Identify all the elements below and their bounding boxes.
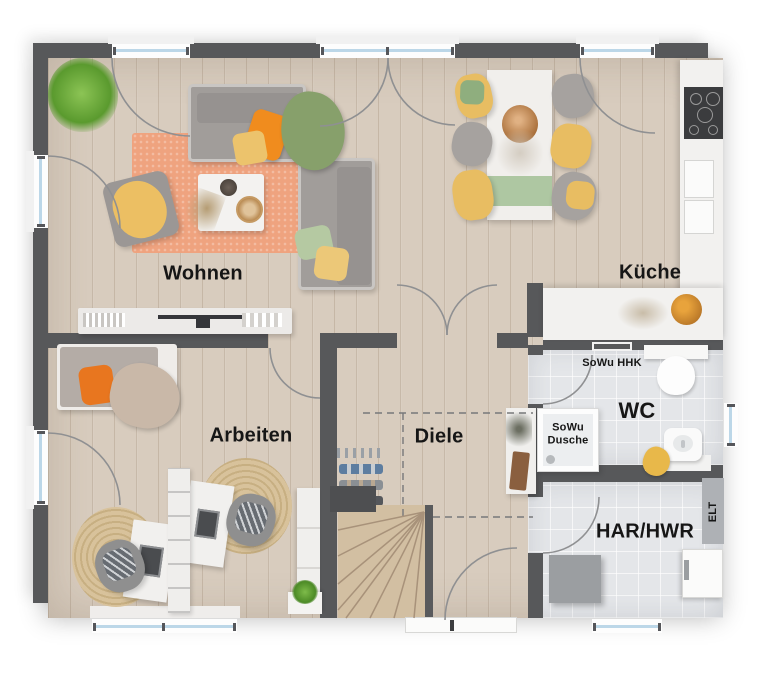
- window-sill: [26, 426, 34, 509]
- books: [83, 313, 125, 327]
- staircase: [338, 505, 433, 618]
- wall-living-hall-right: [497, 333, 528, 348]
- floorplan-canvas: { "plan": { "labels": { "wohnen": "Wohne…: [0, 0, 775, 679]
- window-inner-sill: [90, 606, 240, 618]
- wall-hall-har: [528, 553, 543, 618]
- room-label-wohnen: Wohnen: [163, 263, 243, 286]
- console-plant: [506, 412, 532, 450]
- stair-landing-dark: [330, 486, 376, 512]
- bowl: [236, 196, 263, 223]
- kitchen-cabinet-2: [684, 200, 714, 234]
- annotation-elt: ELT: [707, 502, 719, 523]
- room-label-diele: Diele: [415, 426, 464, 449]
- towel-radiator-symbol: [592, 342, 632, 351]
- cooktop: [684, 87, 723, 139]
- window-wc-right: [724, 403, 738, 447]
- shower-drain: [546, 455, 555, 464]
- tv-stand: [196, 319, 210, 328]
- window-sill: [108, 36, 194, 44]
- wall-office-hall: [320, 348, 337, 618]
- annotation-sowu-hhk: SoWu HHK: [582, 357, 641, 369]
- window-sill: [316, 36, 459, 44]
- window-har-bottom: [592, 619, 662, 633]
- room-label-wc: WC: [618, 398, 655, 424]
- room-label-arbeiten: Arbeiten: [210, 425, 293, 448]
- boiler-unit: [549, 555, 601, 603]
- window-kitchen-top: [580, 44, 655, 58]
- twig-decor: [617, 296, 669, 330]
- dining-table: [487, 70, 552, 220]
- plant-small: [292, 580, 318, 604]
- window-office-left: [34, 430, 48, 505]
- sideboard: [78, 308, 292, 334]
- toilet-bowl: [657, 356, 695, 395]
- pillow-yellow-2: [313, 245, 350, 282]
- wall-living-hall-mid: [320, 333, 397, 348]
- window-living-top-2: [320, 44, 455, 58]
- laptop-2: [194, 509, 220, 540]
- kitchen-counter-bottom: [543, 288, 723, 340]
- hall-console: [506, 408, 536, 494]
- annotation-sowu-dusche: SoWu Dusche: [548, 421, 589, 446]
- office-shelf: [168, 468, 190, 613]
- plant-large: [48, 58, 118, 132]
- window-sill: [576, 36, 659, 44]
- centerpiece-flowers: [495, 130, 545, 176]
- decor-items: [242, 313, 282, 327]
- annotation-sowu-dusche-line1: SoWu: [548, 421, 589, 434]
- window-office-bottom: [92, 619, 237, 633]
- fruit-bowl: [671, 294, 702, 325]
- wall-hall-wc-a: [528, 345, 543, 355]
- room-label-kueche: Küche: [619, 262, 681, 285]
- window-living-top-1: [112, 44, 190, 58]
- vase: [220, 179, 237, 196]
- console-board: [509, 451, 530, 491]
- table-runner: [487, 176, 552, 206]
- room-label-har-hwr: HAR/HWR: [596, 521, 694, 544]
- pillow-yellow: [231, 129, 268, 166]
- window-sill: [26, 151, 34, 232]
- kitchen-cabinet-1: [684, 160, 714, 198]
- coat-rack-hangers: [337, 448, 385, 458]
- entrance-door: [405, 617, 517, 633]
- annotation-sowu-dusche-line2: Dusche: [548, 434, 589, 447]
- washing-machine: [682, 549, 723, 598]
- window-living-left: [34, 155, 48, 228]
- wall-kitchen-stub: [527, 283, 543, 337]
